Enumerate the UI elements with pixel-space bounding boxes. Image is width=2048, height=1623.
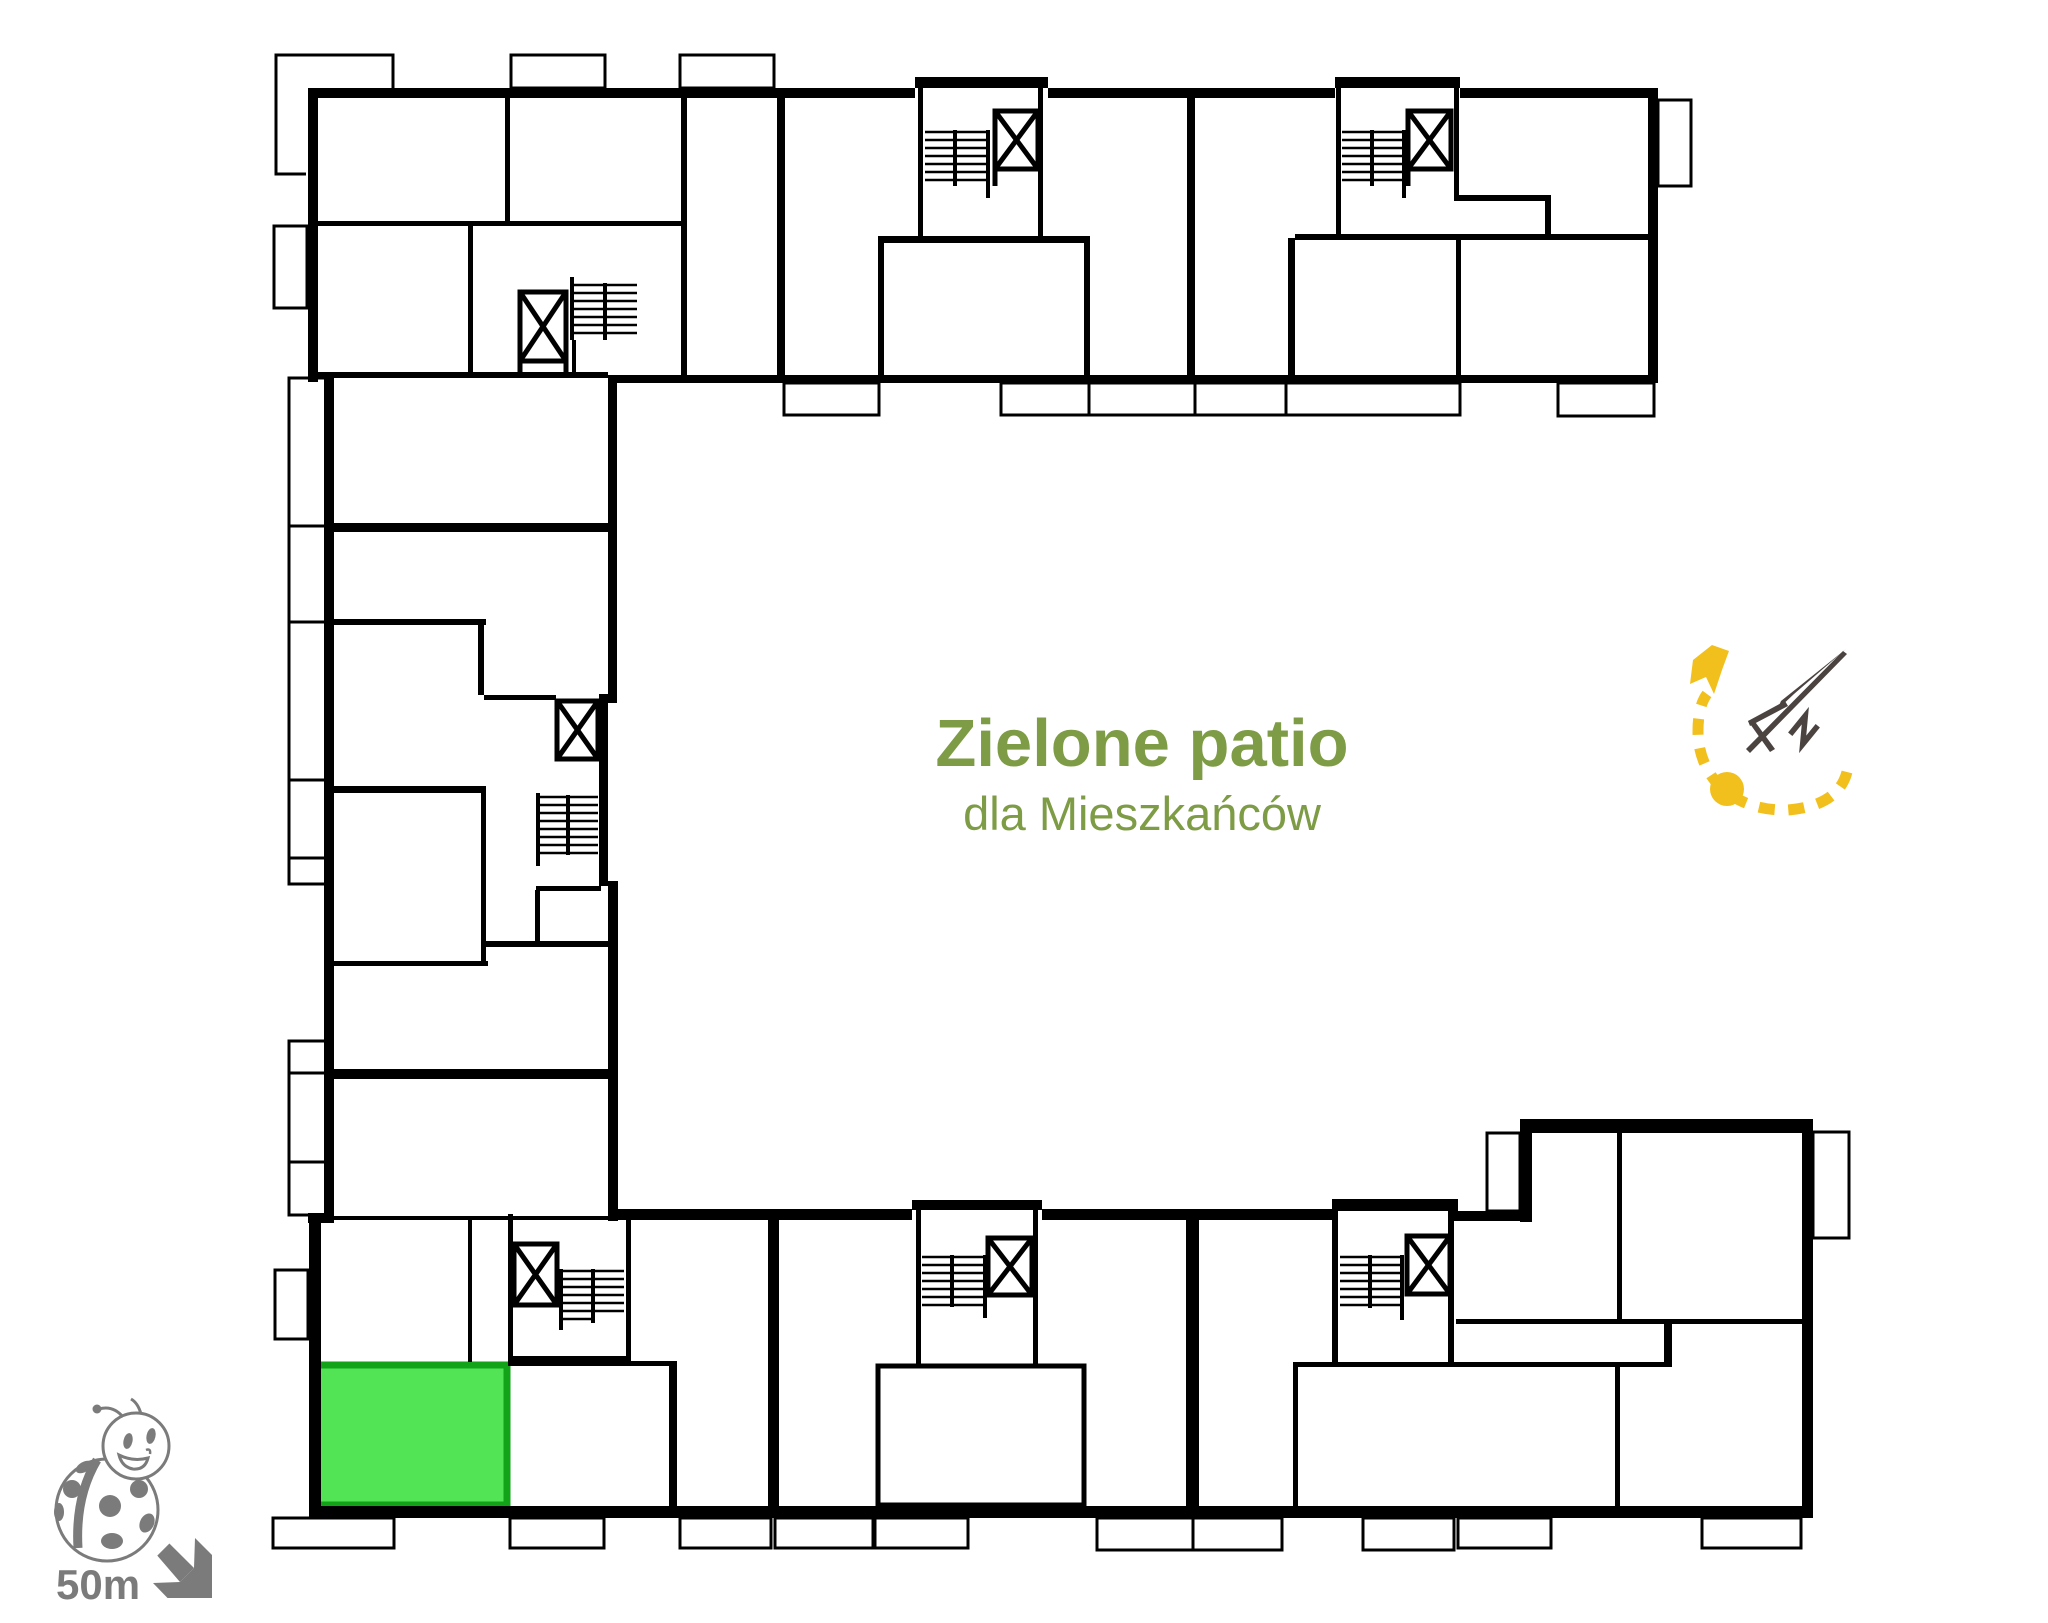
svg-text:50m: 50m: [56, 1561, 140, 1608]
svg-text:dla Mieszkańców: dla Mieszkańców: [963, 787, 1322, 840]
svg-text:Zielone patio: Zielone patio: [935, 706, 1348, 781]
